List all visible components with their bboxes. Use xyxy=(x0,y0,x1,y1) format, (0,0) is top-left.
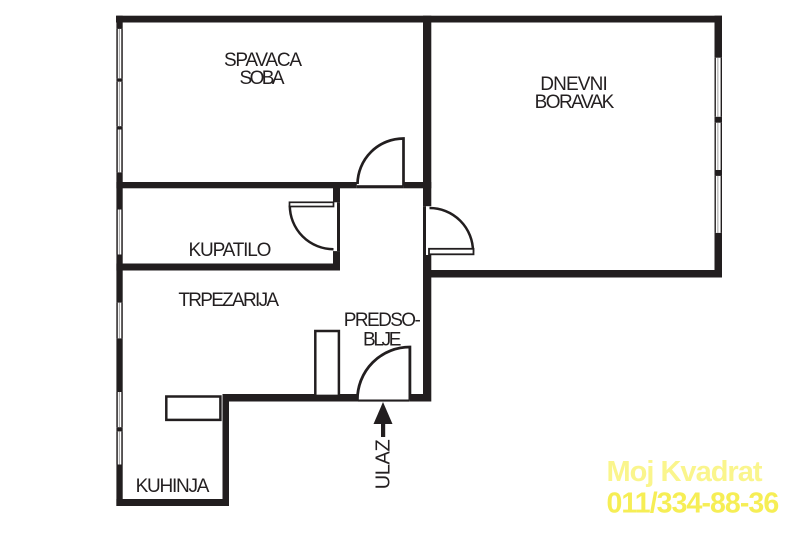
svg-text:SOBA: SOBA xyxy=(240,68,285,89)
svg-text:BORAVAK: BORAVAK xyxy=(535,92,615,113)
svg-text:TRPEZARIJA: TRPEZARIJA xyxy=(178,290,279,311)
svg-text:KUPATILO: KUPATILO xyxy=(189,240,272,261)
svg-text:BLJE: BLJE xyxy=(363,330,402,351)
svg-text:011/334-88-36: 011/334-88-36 xyxy=(607,488,780,520)
svg-text:ULAZ: ULAZ xyxy=(373,439,395,489)
svg-text:PREDSO-: PREDSO- xyxy=(344,310,421,331)
svg-text:KUHINJA: KUHINJA xyxy=(136,476,210,497)
svg-text:Moj Kvadrat: Moj Kvadrat xyxy=(607,456,763,488)
